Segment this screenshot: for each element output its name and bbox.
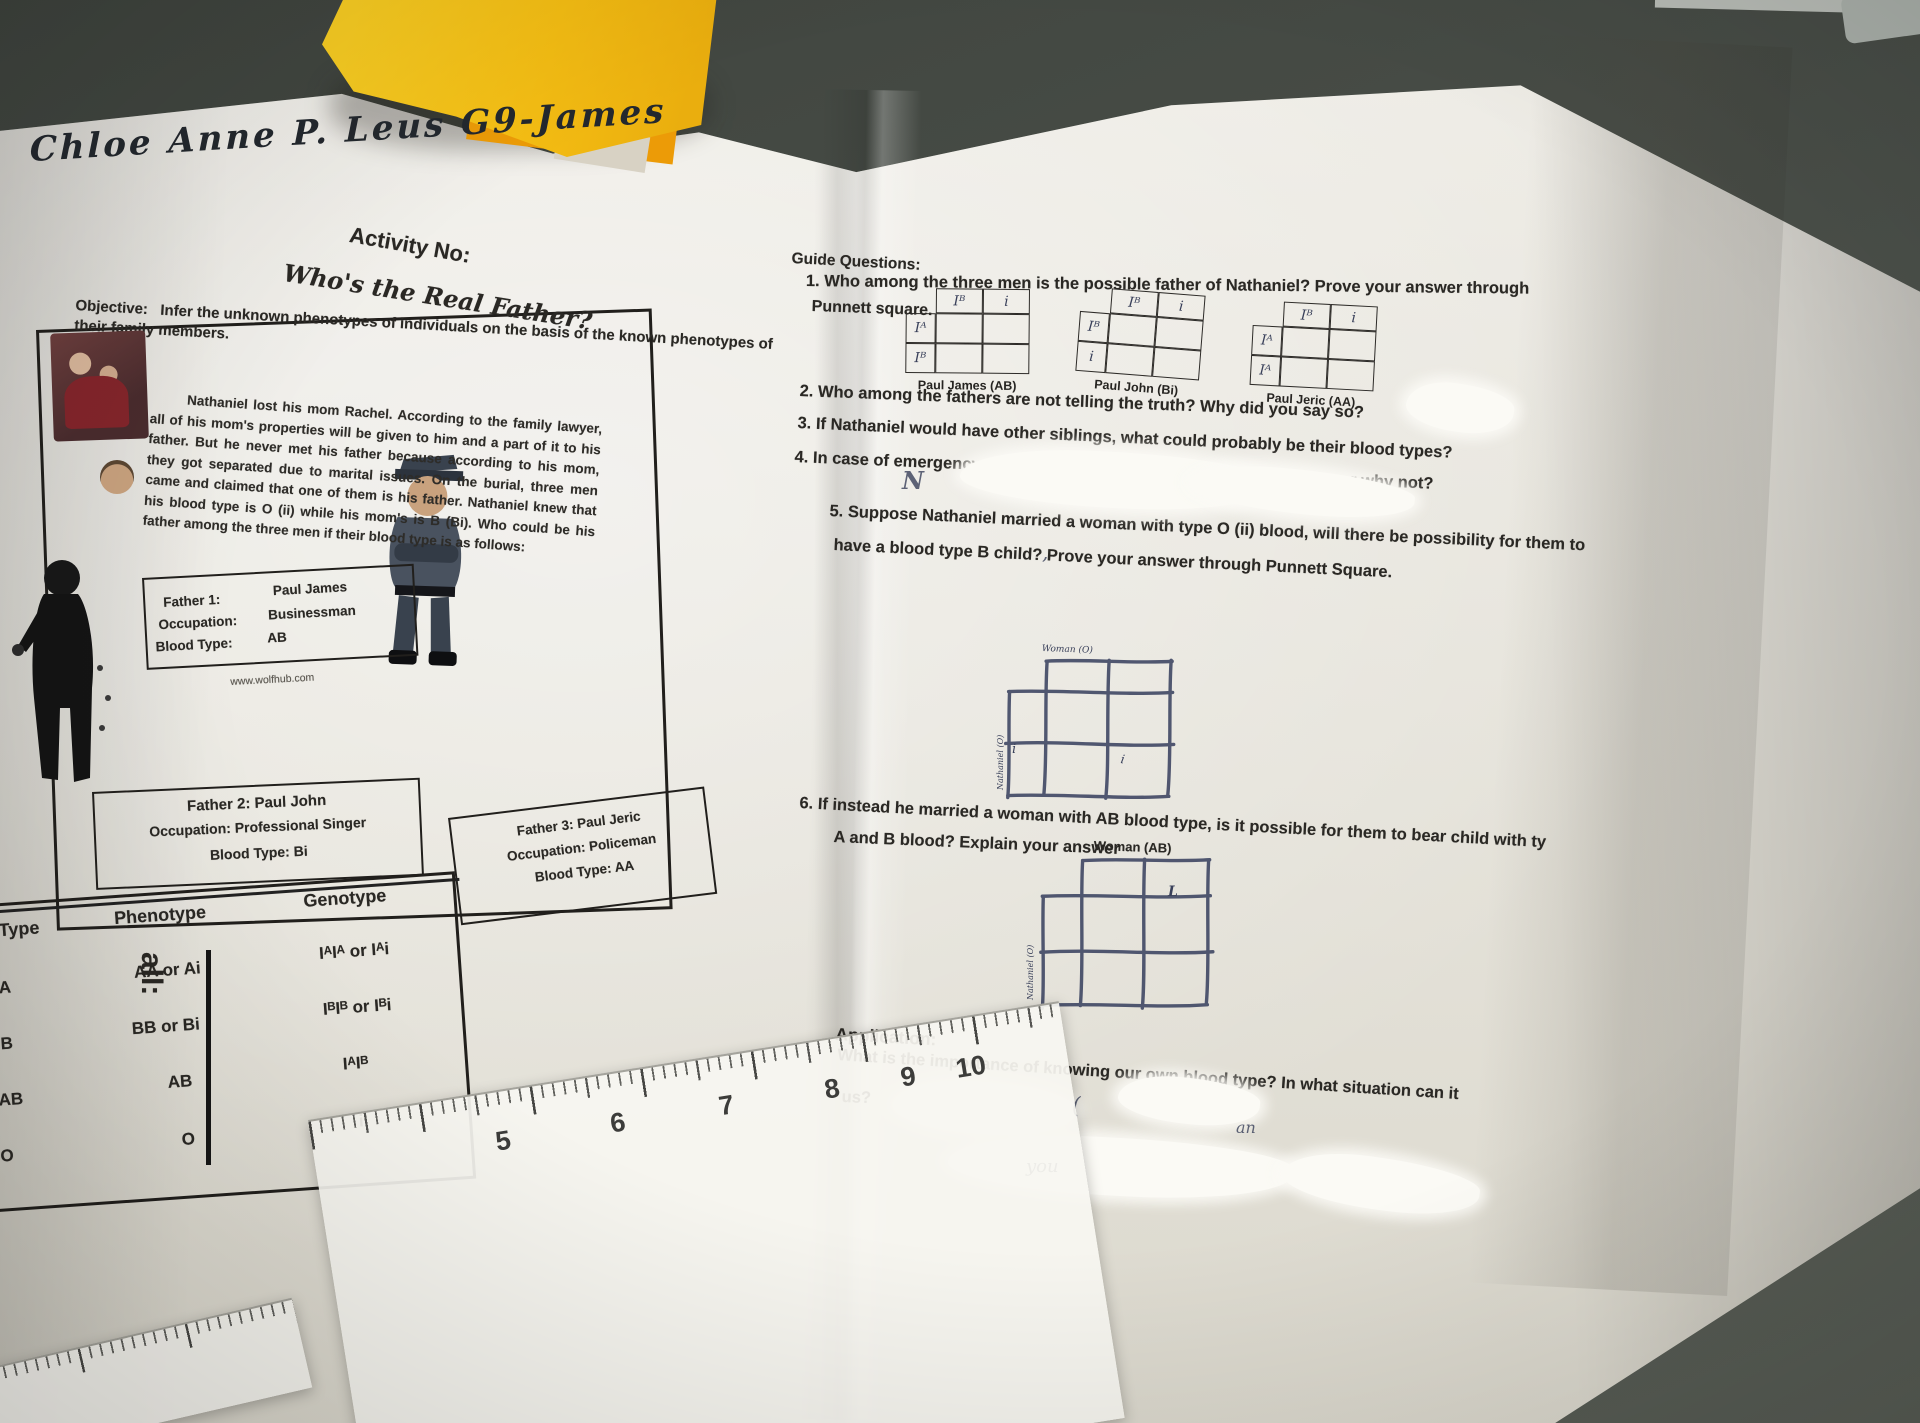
punnett1-cell [936,313,983,343]
punnett-square-paul-james: Iᴮ i Iᴬ Iᴮ Paul James (AB) [905,288,1030,374]
punnett1-cell [983,314,1030,344]
punnett1-cell [982,344,1029,374]
family-photo-clipart [50,330,149,441]
father1-card: Father 1: Paul James Occupation: Busines… [142,564,418,670]
ruler-number-6: 6 [608,1107,628,1140]
punnett2-cell [1152,347,1201,381]
handwriting-remnant-n: N [902,466,924,495]
handwriting-remnant-comma: , [1042,540,1048,564]
punnett2-row1-allele: Iᴮ [1078,311,1110,343]
objective-label: Objective: [75,297,148,318]
punnett2-cell [1154,317,1203,351]
punnett3-cell [1280,356,1329,388]
square5-cell-mark: i [1012,742,1016,757]
punnett1-cell [935,343,982,373]
family-face-1 [69,352,92,375]
ruler-number-8: 8 [822,1073,842,1106]
father1-title: Father 1: [163,592,221,610]
table-r3-geno: IᴬIᴮ [342,1053,369,1075]
punnett1-col1-allele: Iᴮ [936,288,983,313]
punnett2-col1-allele: Iᴮ [1110,288,1159,317]
punnett2-cell [1108,313,1157,347]
handwriting-remnant-an: an [1236,1118,1256,1137]
punnett1-corner [906,288,936,313]
father2-line3: Blood Type: Bi [97,838,421,868]
punnett3-cell [1326,359,1375,391]
punnett3-cell [1281,327,1330,359]
singer-clipart [4,548,124,798]
photo-scene: Chloe Anne P. Leus G9-James Activity No:… [0,0,1920,1423]
father1-blood-label: Blood Type: [155,635,233,654]
table-r3-type: AB [0,1089,24,1111]
table-header-phenotype: Phenotype [113,902,206,929]
table-r1-type: A [0,978,12,999]
table-r2-geno: IᴮIᴮ or Iᴮi [322,995,392,1020]
punnett2-corner [1080,286,1112,313]
ruler-number-10: 10 [954,1049,989,1084]
punnett3-col2-allele: i [1330,304,1378,331]
family-body [64,375,130,429]
punnett1-col2-allele: i [983,289,1030,314]
table-header-genotype: Genotype [303,885,387,912]
father1-occ: Businessman [268,603,356,623]
punnett2-row2-allele: i [1075,341,1107,373]
punnett-square-paul-jeric: Iᴮ i Iᴬ Iᴬ Paul Jeric (AA) [1250,300,1378,391]
father1-blood: AB [267,630,287,646]
square6-cell-mark: L [1168,884,1178,900]
handdrawn-punnett-q5 [999,650,1187,803]
fold-text: all: [134,952,168,995]
table-r1-geno: IᴬIᴬ or Iᴬi [318,939,389,964]
ruler-number-9: 9 [898,1061,918,1094]
boy-face-clipart [100,460,134,494]
punnett2-col2-allele: i [1157,292,1206,321]
father1-occ-label: Occupation: [158,613,237,632]
table-r2-pheno: BB or Bi [131,1014,200,1039]
punnett3-corner [1253,300,1284,327]
ruler-number-7: 7 [717,1089,737,1122]
table-r4-pheno: O [181,1129,196,1150]
punnett3-row2-allele: Iᴬ [1250,355,1282,387]
punnett3-row1-allele: Iᴬ [1251,325,1283,357]
punnett1-row2-allele: Iᴮ [905,343,935,373]
punnett3-col1-allele: Iᴮ [1283,302,1331,329]
punnett2-cell [1105,343,1154,377]
punnett-square-paul-john: Iᴮ i Iᴮ i Paul John (Bi) [1075,286,1205,380]
table-r2-type: B [0,1034,14,1055]
fold-line [206,950,211,1165]
handdrawn-punnett-q6 [1031,851,1222,1015]
punnett1-row1-allele: Iᴬ [906,313,936,343]
ruler-number-5: 5 [493,1125,513,1158]
table-header-bloodtype: Blood Type [0,917,40,945]
punnett3-cell [1328,329,1377,361]
table-r4-type: O [0,1146,14,1167]
father2-card: Father 2: Paul John Occupation: Professi… [92,778,424,890]
table-r3-pheno: AB [167,1071,193,1093]
father1-name: Paul James [272,579,347,598]
